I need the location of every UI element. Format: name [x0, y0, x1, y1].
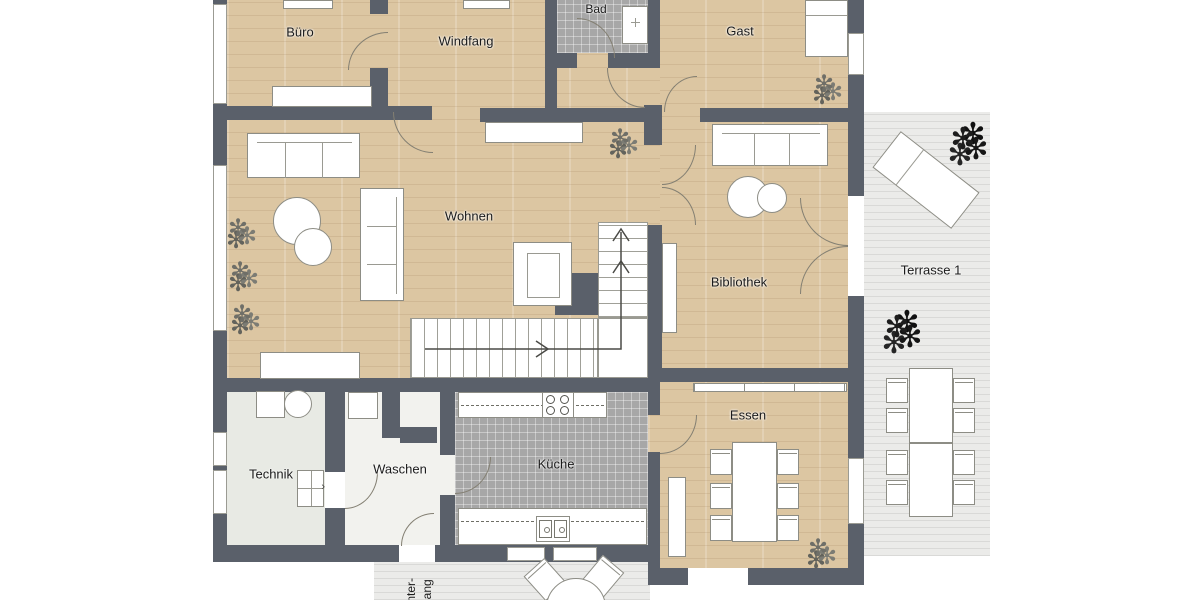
wohnen-sofa-2 [360, 188, 404, 301]
rear-door-opening [399, 545, 435, 562]
bibliothek-radiator [662, 243, 677, 333]
window-essen-right [848, 458, 864, 524]
wall-windfang-bad [545, 0, 557, 112]
room-label-kueche: Küche [538, 457, 575, 472]
terrace-chair [886, 408, 908, 433]
bad-washbasin [622, 6, 648, 44]
room-label-gast: Gast [726, 24, 753, 39]
wall-kueche-essen-bottom [648, 452, 660, 568]
kueche-stove [542, 392, 574, 418]
wall-hall-stub [644, 105, 662, 145]
room-label-wohnen: Wohnen [445, 209, 493, 224]
essen-chair [777, 449, 799, 475]
floor-plan: › ✻ ✻ ✻ ✻ ✻ ✻ ✻ ✻ Büro Windfang [0, 0, 1200, 600]
wall-buero-divider-top [370, 0, 388, 14]
essen-chair [777, 515, 799, 541]
room-label-windfang: Windfang [439, 34, 494, 49]
technik-shaft-box: › [297, 470, 324, 507]
technik-appliance-square [256, 391, 285, 418]
technik-appliance-round [284, 390, 312, 418]
terrace-chair [886, 450, 908, 475]
terrace-chair [886, 480, 908, 505]
window-technik-left-1 [213, 432, 227, 466]
kueche-sink [536, 516, 570, 542]
terrace-chair [886, 378, 908, 403]
wohnen-tv-board [513, 242, 572, 306]
plant-icon: ✻ [230, 260, 250, 284]
wall-bad-bottom-left [557, 53, 577, 68]
terrace-chair [953, 378, 975, 403]
essen-chair [710, 483, 732, 509]
room-label-terrasse: Terrasse 1 [901, 263, 962, 278]
waschen-appliance [348, 392, 378, 419]
terrace-chair [953, 480, 975, 505]
staircase-landing [598, 318, 648, 378]
room-label-bibliothek: Bibliothek [711, 275, 767, 290]
wohnen-sideboard-bottom [260, 352, 360, 379]
essen-cabinet [668, 477, 686, 557]
wall-waschen-niche-h [400, 427, 437, 443]
wall-waschen-kueche-bottom [440, 495, 455, 545]
buero-desk [283, 0, 333, 9]
tree-icon: ✻ [884, 313, 909, 343]
wall-waschen-niche-v [382, 390, 400, 438]
windfang-cabinet [463, 0, 510, 9]
window-gast-right [848, 33, 864, 75]
shaft-arrow-icon: › [321, 481, 325, 493]
window-kueche-south-1 [507, 547, 545, 561]
gast-bed [805, 0, 848, 57]
essen-chair [777, 483, 799, 509]
terrace-door-opening [848, 196, 864, 296]
wall-bibliothek-essen [660, 368, 848, 382]
wall-bad-gast [648, 0, 660, 68]
terrace-table-2 [909, 443, 953, 517]
essen-chair [710, 515, 732, 541]
room-label-buero: Büro [286, 25, 313, 40]
window-technik-left-2 [213, 470, 227, 514]
essen-dining-table [732, 442, 777, 542]
wall-under-windfang [480, 108, 644, 122]
room-label-essen: Essen [730, 408, 766, 423]
wall-technik-waschen-bottom [325, 508, 345, 545]
wall-essen-bottom-right [748, 568, 864, 585]
window-buero-left [213, 4, 227, 104]
rear-entrance-label-line1: Hinter- [404, 578, 418, 600]
wall-wohnen-bottom [213, 378, 660, 392]
staircase-lower-flight [410, 318, 598, 378]
wall-essen-bottom-left [648, 568, 688, 585]
wohnen-sofa [247, 133, 360, 178]
plant-icon: ✻ [610, 127, 630, 151]
terrace-chair [953, 450, 975, 475]
plant-icon: ✻ [228, 217, 248, 241]
room-label-bad: Bad [585, 2, 606, 16]
plant-icon: ✻ [814, 73, 834, 97]
window-kueche-south-2 [553, 547, 597, 561]
plant-icon: ✻ [232, 303, 252, 327]
terrace-table-1 [909, 368, 953, 443]
wall-technik-waschen-top [325, 388, 345, 472]
essen-south-opening [688, 568, 748, 585]
buero-sideboard [272, 86, 372, 107]
room-label-technik: Technik [249, 467, 293, 482]
bibliothek-table-2 [757, 183, 787, 213]
essen-chair [710, 449, 732, 475]
window-wohnen-left [213, 165, 227, 331]
bibliothek-sofa [712, 124, 828, 166]
terrace-chair [953, 408, 975, 433]
tree-icon: ✻ [950, 125, 975, 155]
wall-wohnen-bibliothek [648, 225, 662, 380]
wohnen-sideboard-top [485, 122, 583, 143]
essen-sideboard [693, 383, 847, 392]
wohnen-side-table-2 [294, 228, 332, 266]
wall-under-gast [700, 108, 848, 122]
room-label-waschen: Waschen [373, 462, 427, 477]
rear-entrance-label-line2: eingang [420, 579, 434, 600]
staircase-upper-flight [598, 222, 648, 318]
plant-icon: ✻ [808, 537, 828, 561]
kueche-counter-top [458, 392, 607, 418]
wall-waschen-kueche-top [440, 388, 455, 455]
